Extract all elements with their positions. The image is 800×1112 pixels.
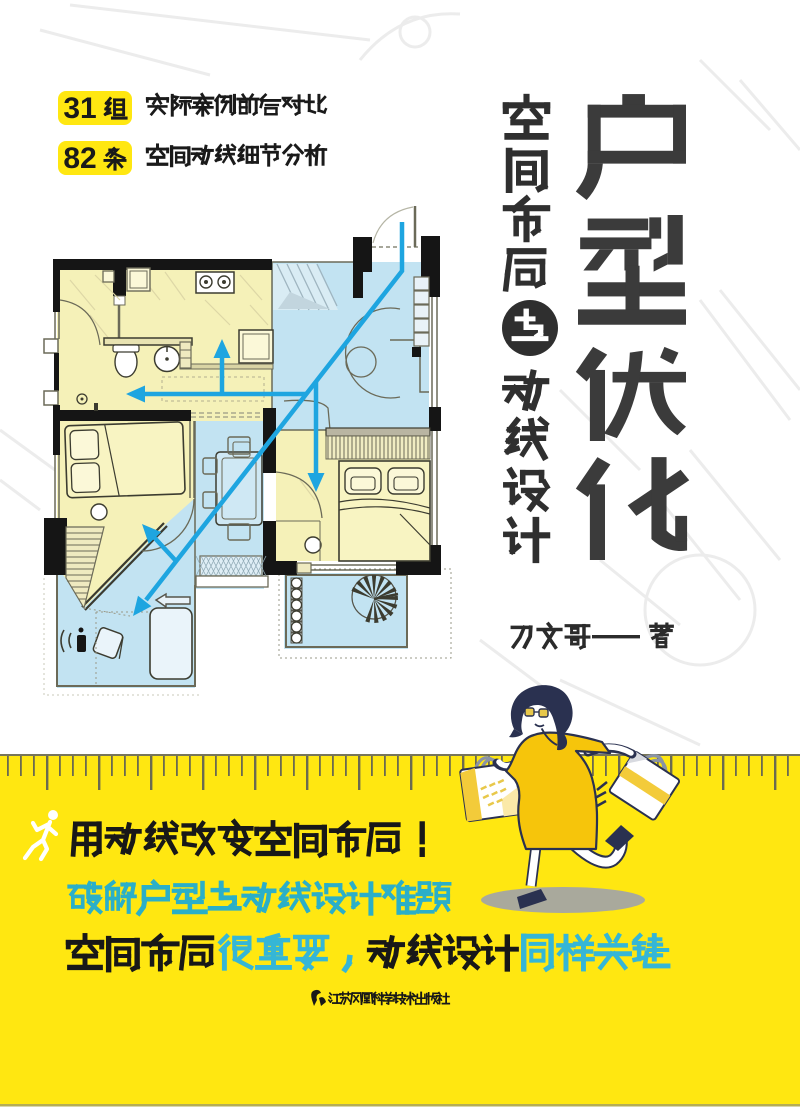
- svg-text:82: 82: [63, 142, 96, 175]
- svg-text:31: 31: [63, 92, 96, 125]
